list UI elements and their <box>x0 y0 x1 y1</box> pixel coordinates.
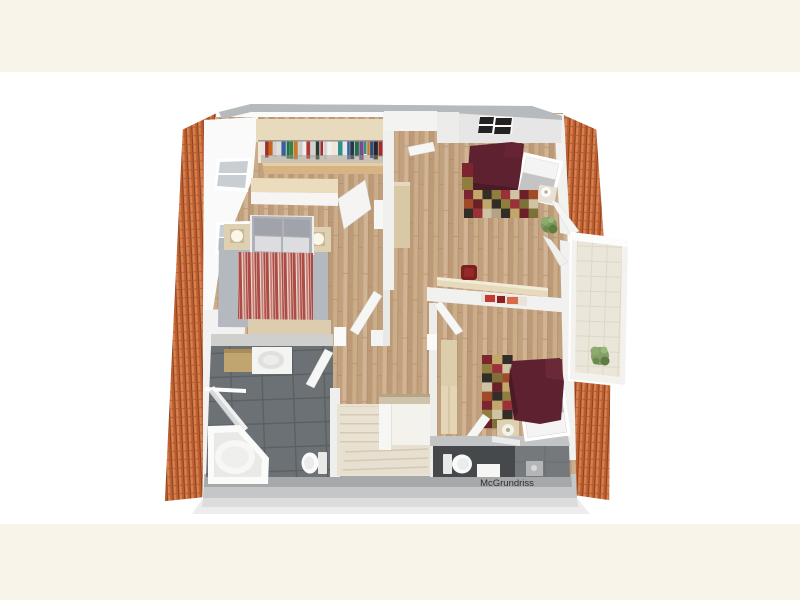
svg-text:McGrundriss: McGrundriss <box>480 478 534 489</box>
